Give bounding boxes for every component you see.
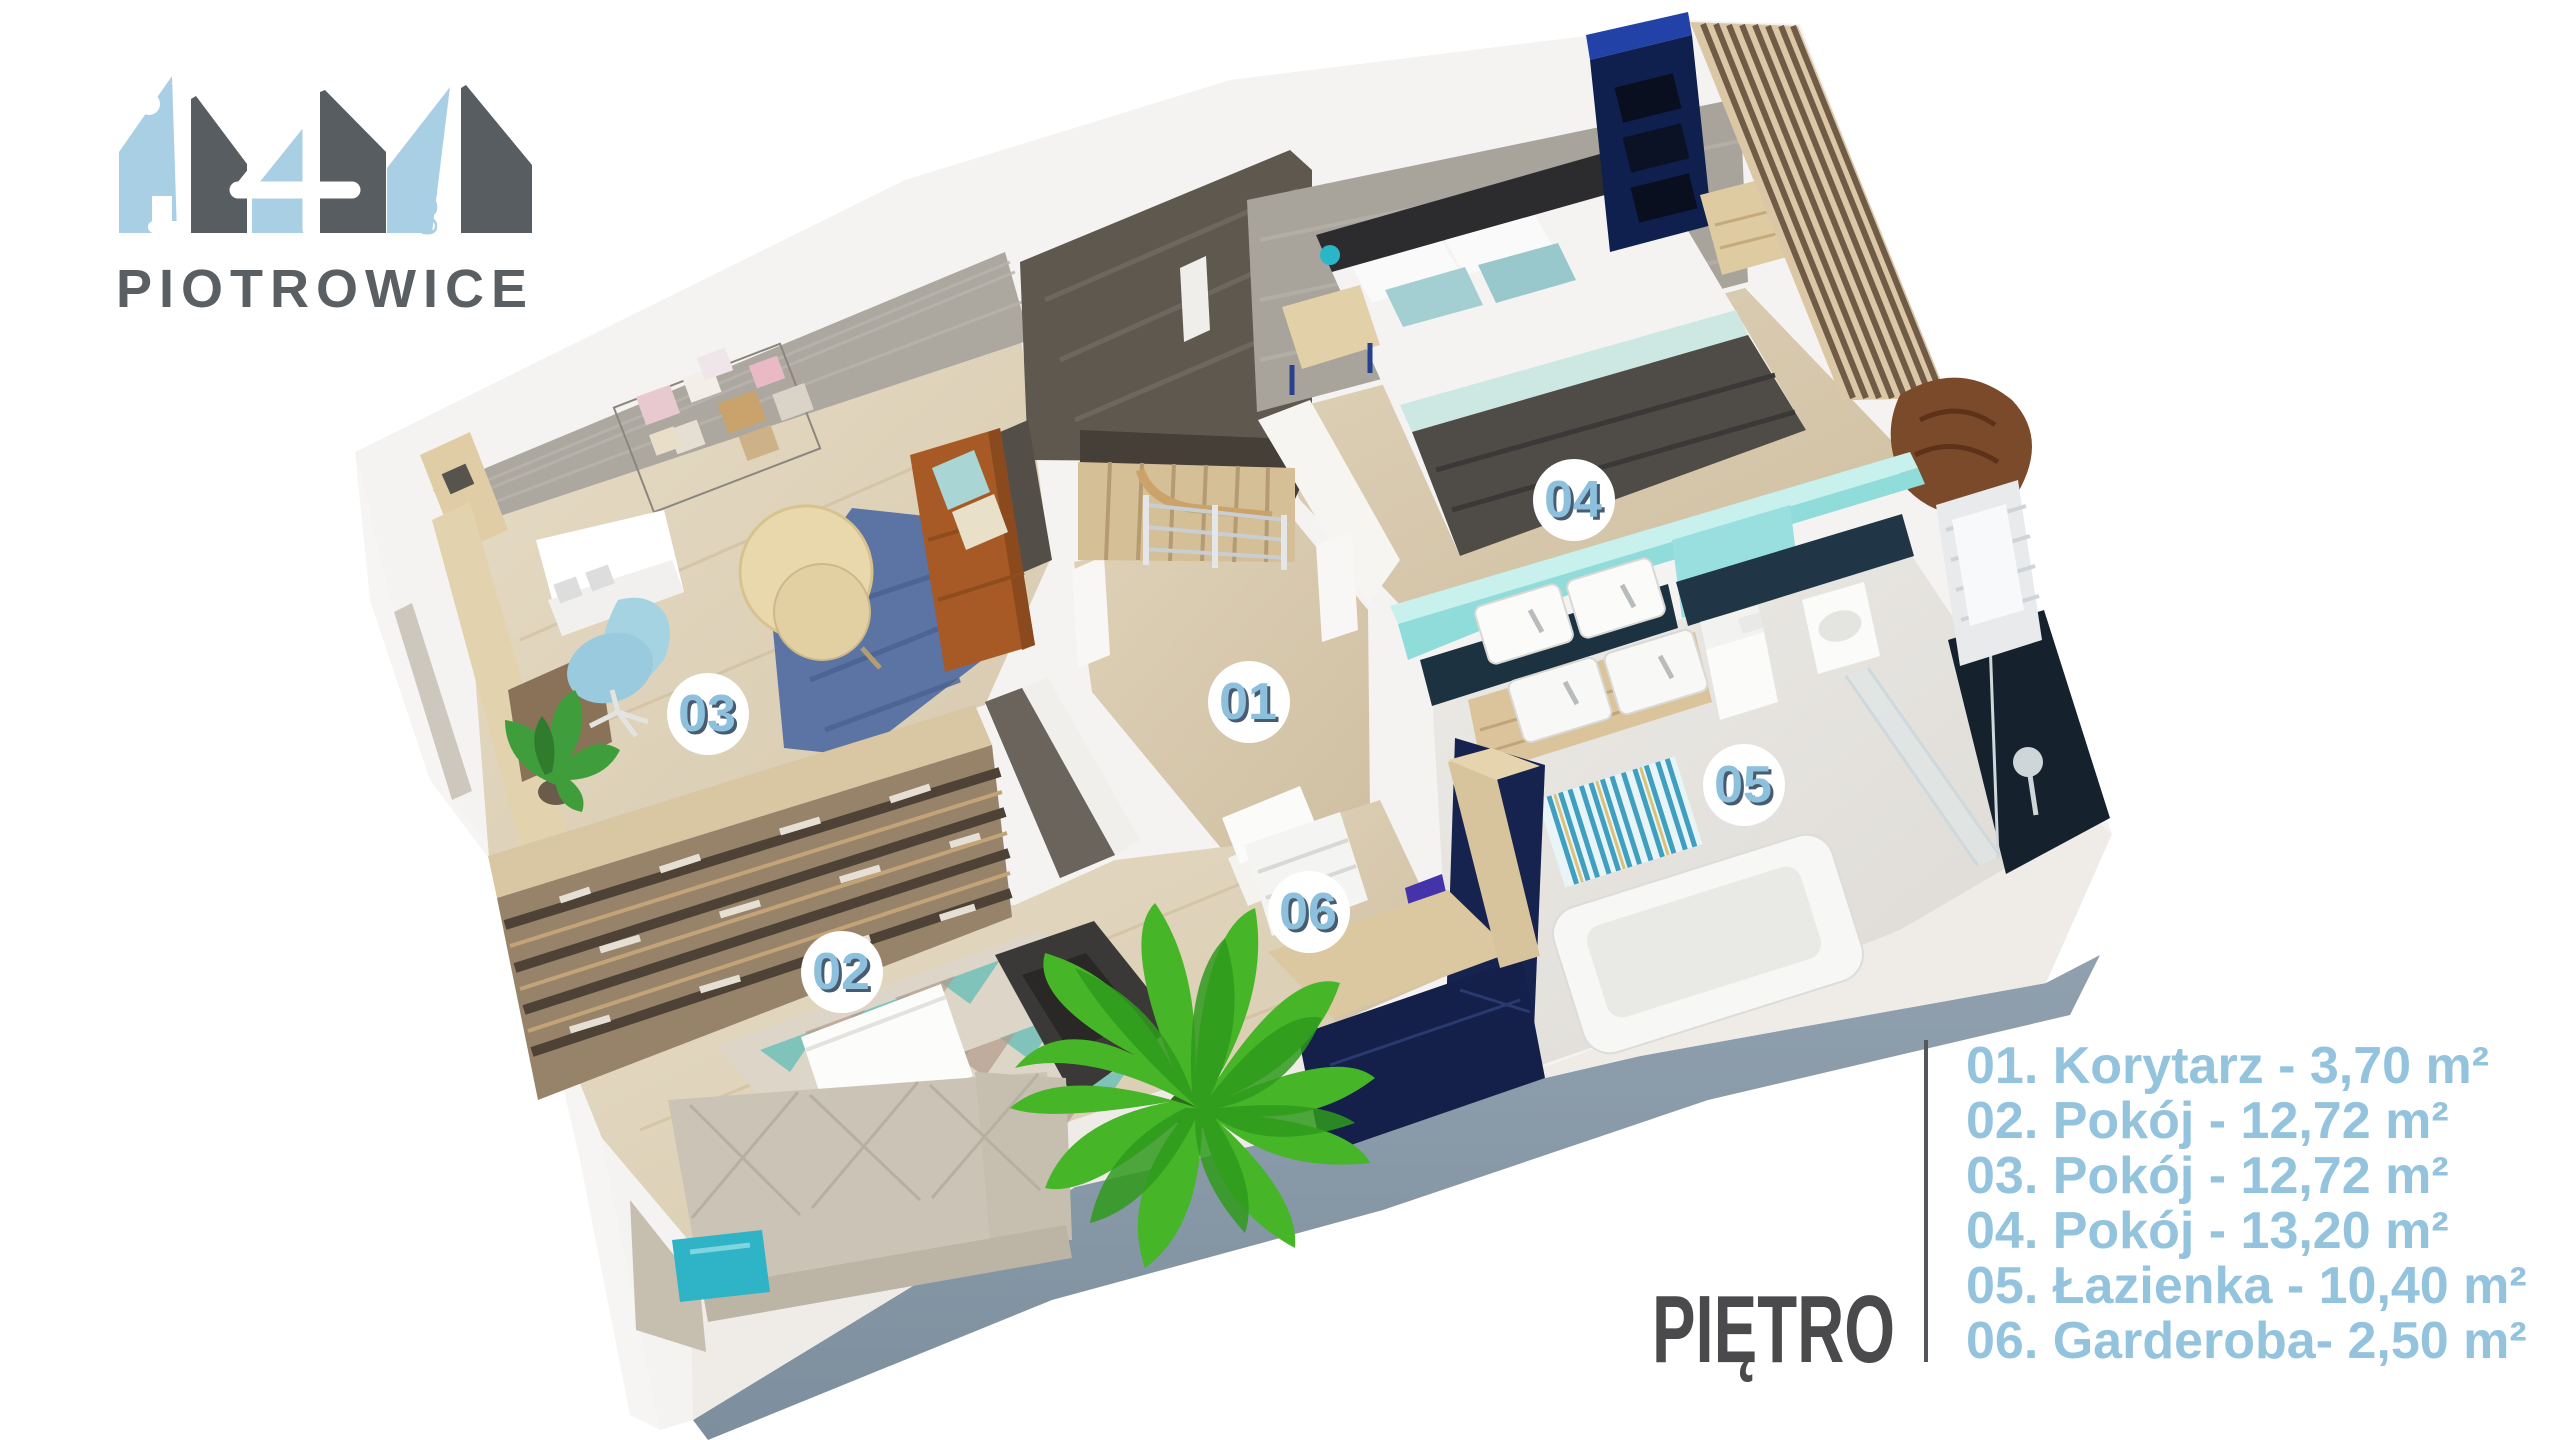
svg-text:01: 01	[1219, 673, 1277, 731]
svg-text:01. Korytarz - 3,70 m²: 01. Korytarz - 3,70 m²	[1966, 1037, 2489, 1095]
svg-text:02: 02	[812, 943, 870, 1001]
svg-text:06: 06	[1279, 883, 1337, 941]
svg-text:PIOTROWICE: PIOTROWICE	[116, 259, 534, 319]
svg-text:osiedle: osiedle	[404, 122, 445, 236]
svg-text:04: 04	[1544, 471, 1602, 529]
svg-text:05. Łazienka - 10,40 m²: 05. Łazienka - 10,40 m²	[1966, 1257, 2527, 1315]
svg-text:06. Garderoba- 2,50 m²: 06. Garderoba- 2,50 m²	[1966, 1312, 2527, 1370]
svg-text:05: 05	[1714, 756, 1772, 814]
svg-text:PIĘTRO: PIĘTRO	[1652, 1277, 1895, 1383]
svg-text:02. Pokój - 12,72 m²: 02. Pokój - 12,72 m²	[1966, 1092, 2449, 1150]
svg-text:03: 03	[678, 685, 736, 743]
svg-text:03. Pokój - 12,72 m²: 03. Pokój - 12,72 m²	[1966, 1147, 2449, 1205]
svg-text:04. Pokój - 13,20 m²: 04. Pokój - 13,20 m²	[1966, 1202, 2449, 1260]
